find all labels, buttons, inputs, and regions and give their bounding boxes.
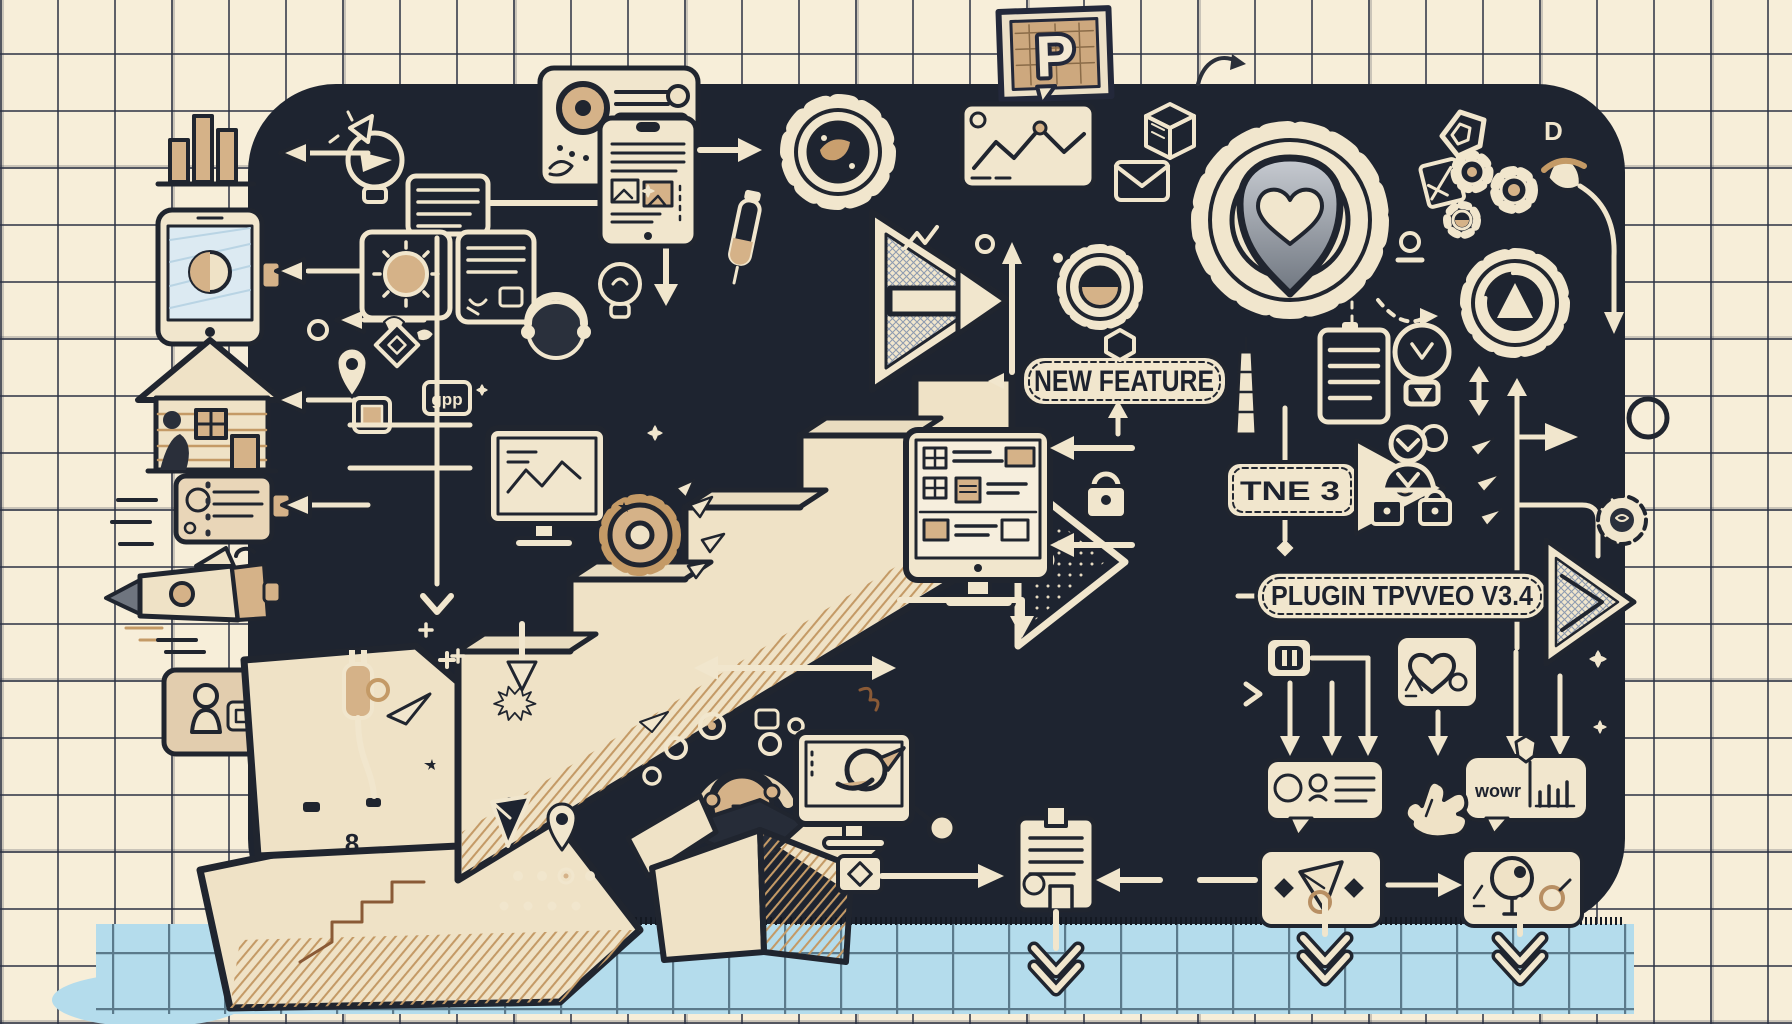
gear-contrast-icon [1064,251,1136,323]
svg-text:NEW FEATURE: NEW FEATURE [1034,365,1214,398]
id-card-icon [112,476,290,544]
blob-gear-icon [1598,496,1646,544]
notes-card-icon [458,232,534,322]
tower-pencil-icon [1236,338,1256,434]
bar-chart-icon [158,116,254,184]
gpp-tag: gpp [424,382,470,414]
illustration-canvas: P 8 [0,0,1792,1024]
gear-photo-icon [790,104,886,200]
swoosh-arrow-icon [1198,54,1246,84]
speed-lines [112,500,156,544]
ring-on-edge [1629,399,1667,437]
heart-card-icon [1396,636,1478,708]
line-chart-card-icon [962,104,1094,188]
envelope-kite-card [1260,850,1382,926]
logo-letter: P [1035,23,1076,89]
document-tablet-icon [600,118,696,246]
clipboard-icon [1018,806,1094,910]
monitor-list-icon [906,430,1050,608]
tiny-tag [756,710,778,728]
p-logo-badge: P [998,8,1111,106]
gear-triangle-icon [1469,257,1561,349]
notes-doc-icon [408,176,488,234]
step-number: 8 [345,828,359,858]
hex-nut-icon [1106,330,1134,360]
svg-text:TNE 3: TNE 3 [1240,476,1340,506]
svg-text:wowr: wowr [1474,781,1521,801]
svg-text:PLUGIN TPVVEO V3.4: PLUGIN TPVVEO V3.4 [1271,580,1533,611]
tablet-icon [158,210,280,344]
doodle-scene: P 8 [0,0,1792,1024]
letter-d: D [1544,116,1563,146]
gear-heart-icon [1204,134,1376,306]
badge-flag [1516,736,1536,762]
